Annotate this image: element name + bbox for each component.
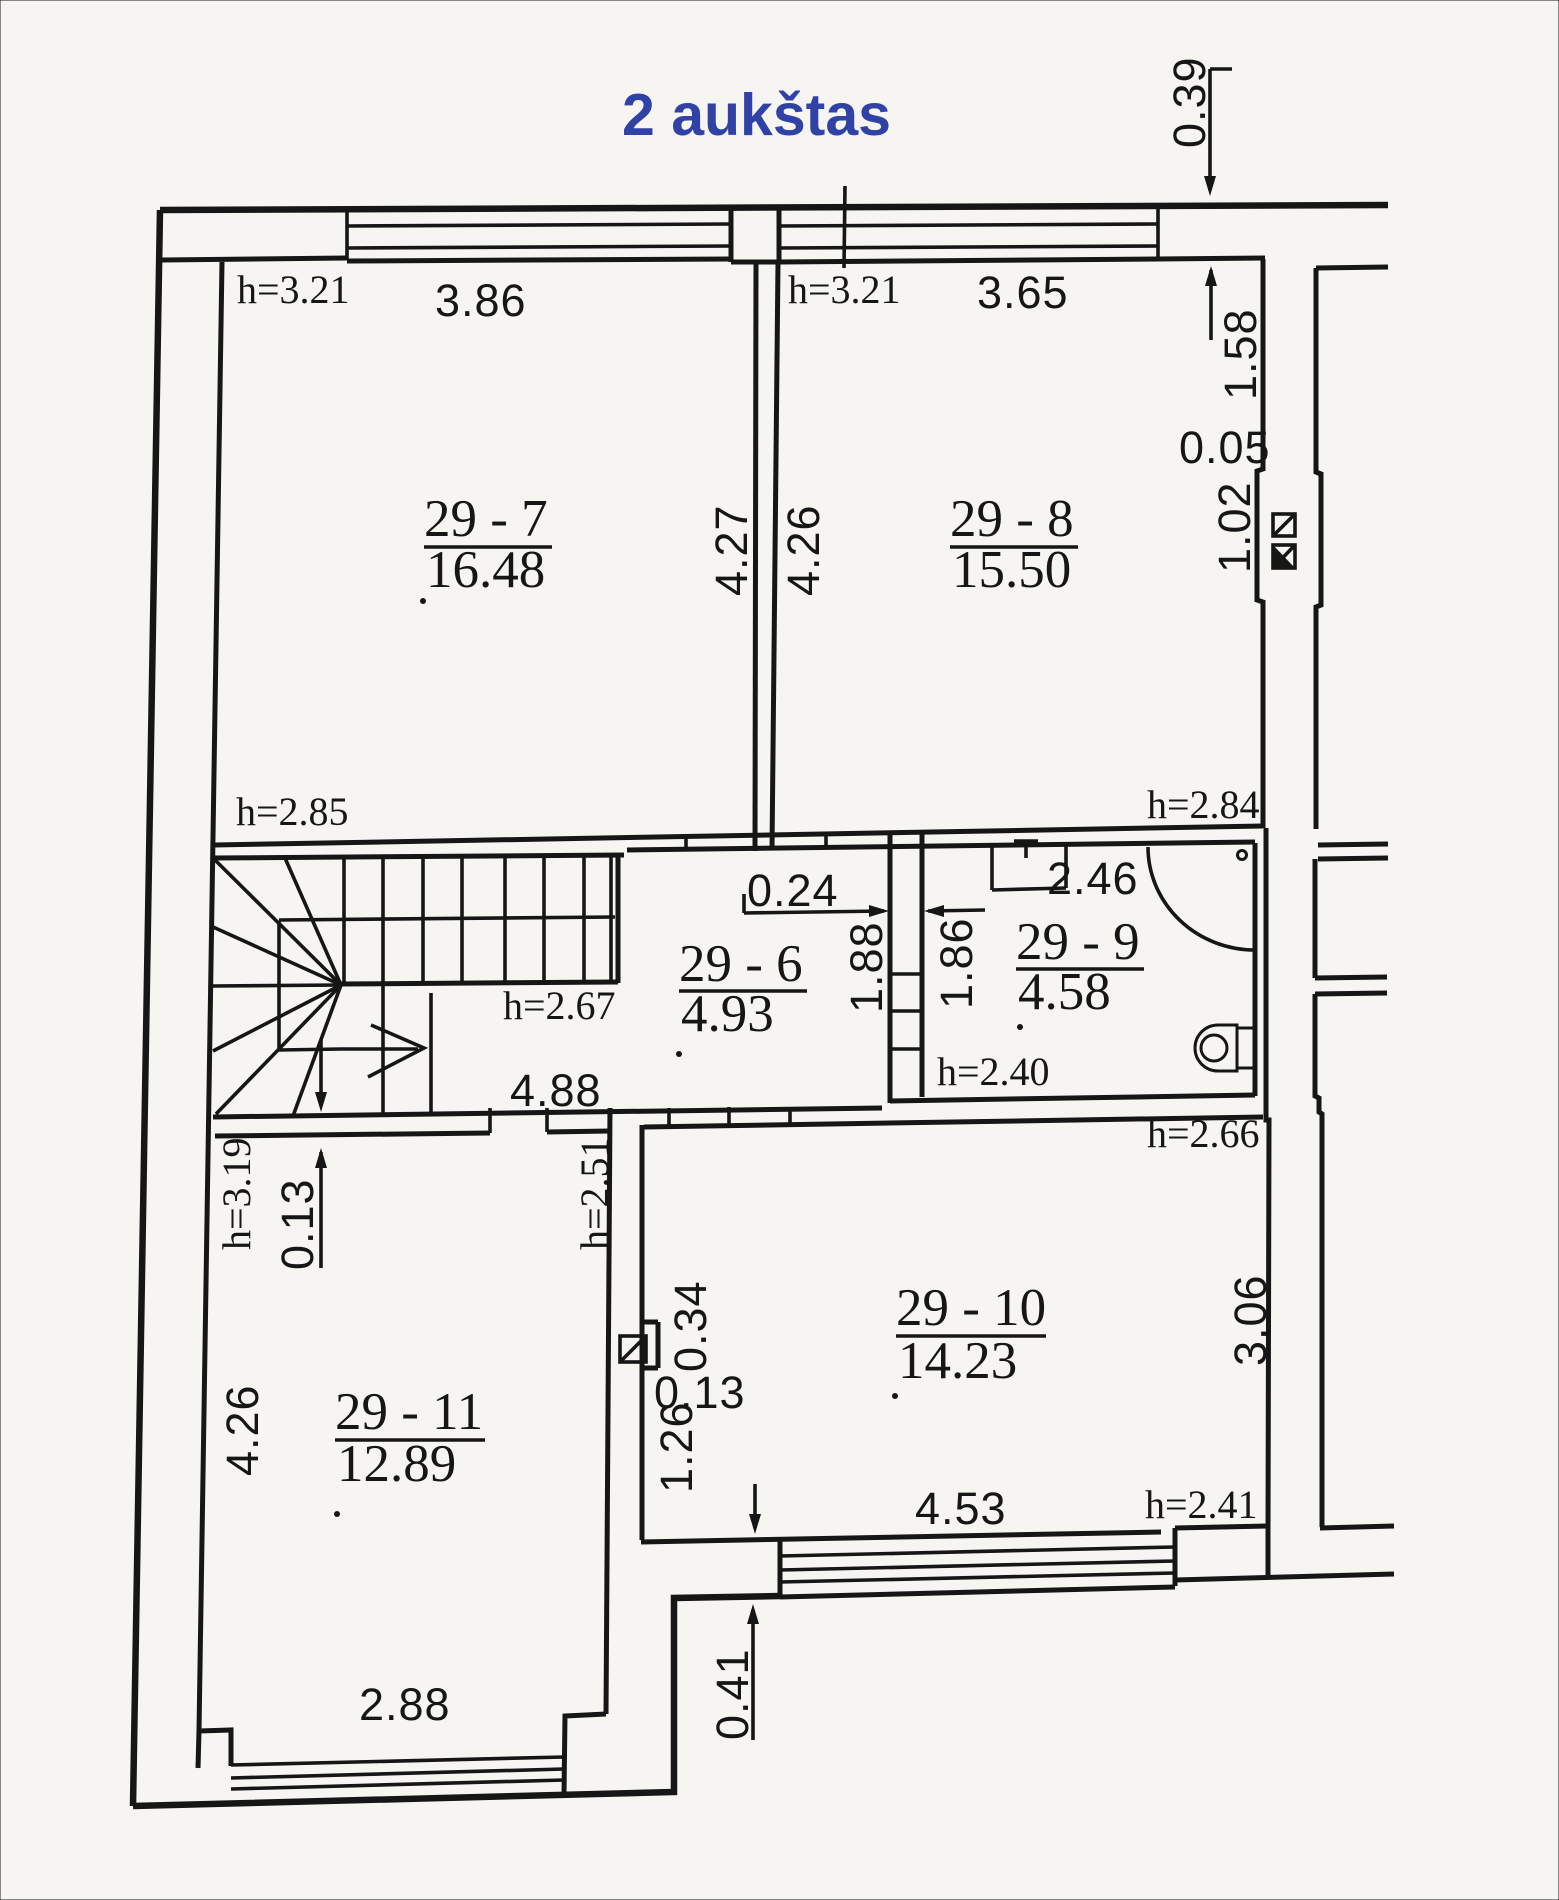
- svg-text:0.39: 0.39: [1164, 56, 1215, 148]
- svg-text:29 - 10: 29 - 10: [896, 1279, 1046, 1337]
- svg-text:4.26: 4.26: [217, 1384, 268, 1476]
- svg-text:0.13: 0.13: [272, 1178, 323, 1270]
- svg-text:h=3.21: h=3.21: [237, 267, 350, 312]
- svg-text:29 - 11: 29 - 11: [335, 1383, 483, 1441]
- svg-text:0.24: 0.24: [747, 865, 839, 916]
- svg-text:4.26: 4.26: [778, 504, 829, 596]
- svg-text:h=3.21: h=3.21: [788, 267, 901, 312]
- svg-text:2.88: 2.88: [359, 1679, 451, 1730]
- svg-text:h=2.85: h=2.85: [236, 789, 349, 834]
- svg-text:1.26: 1.26: [651, 1401, 702, 1493]
- svg-text:4.53: 4.53: [915, 1483, 1007, 1534]
- svg-text:0.34: 0.34: [665, 1280, 716, 1372]
- svg-text:2 aukštas: 2 aukštas: [622, 82, 891, 148]
- svg-text:3.86: 3.86: [435, 275, 527, 326]
- svg-text:14.23: 14.23: [898, 1332, 1017, 1390]
- svg-text:15.50: 15.50: [952, 541, 1071, 599]
- svg-text:16.48: 16.48: [426, 541, 545, 599]
- svg-text:h=2.84: h=2.84: [1147, 782, 1260, 827]
- svg-text:h=3.19: h=3.19: [214, 1137, 259, 1250]
- svg-text:0.41: 0.41: [707, 1648, 758, 1740]
- svg-text:1.58: 1.58: [1215, 308, 1266, 400]
- svg-text:1.02: 1.02: [1209, 481, 1260, 573]
- svg-text:4.27: 4.27: [706, 504, 757, 596]
- svg-text:29 - 7: 29 - 7: [424, 490, 548, 548]
- svg-text:3.06: 3.06: [1225, 1274, 1276, 1366]
- svg-text:h=2.41: h=2.41: [1145, 1482, 1258, 1527]
- svg-text:4.93: 4.93: [681, 985, 774, 1043]
- svg-text:h=2.51: h=2.51: [572, 1137, 617, 1250]
- svg-text:2.46: 2.46: [1047, 853, 1139, 904]
- svg-text:h=2.66: h=2.66: [1147, 1111, 1260, 1156]
- svg-text:1.88: 1.88: [841, 921, 892, 1013]
- svg-text:3.65: 3.65: [977, 267, 1069, 318]
- svg-text:4.58: 4.58: [1018, 963, 1111, 1021]
- svg-text:h=2.67: h=2.67: [503, 983, 616, 1028]
- svg-text:0.05: 0.05: [1179, 422, 1271, 473]
- svg-text:4.88: 4.88: [510, 1065, 602, 1116]
- svg-text:12.89: 12.89: [337, 1435, 456, 1493]
- svg-text:h=2.40: h=2.40: [937, 1049, 1050, 1094]
- svg-text:1.86: 1.86: [931, 917, 982, 1009]
- svg-text:29 - 8: 29 - 8: [950, 490, 1074, 548]
